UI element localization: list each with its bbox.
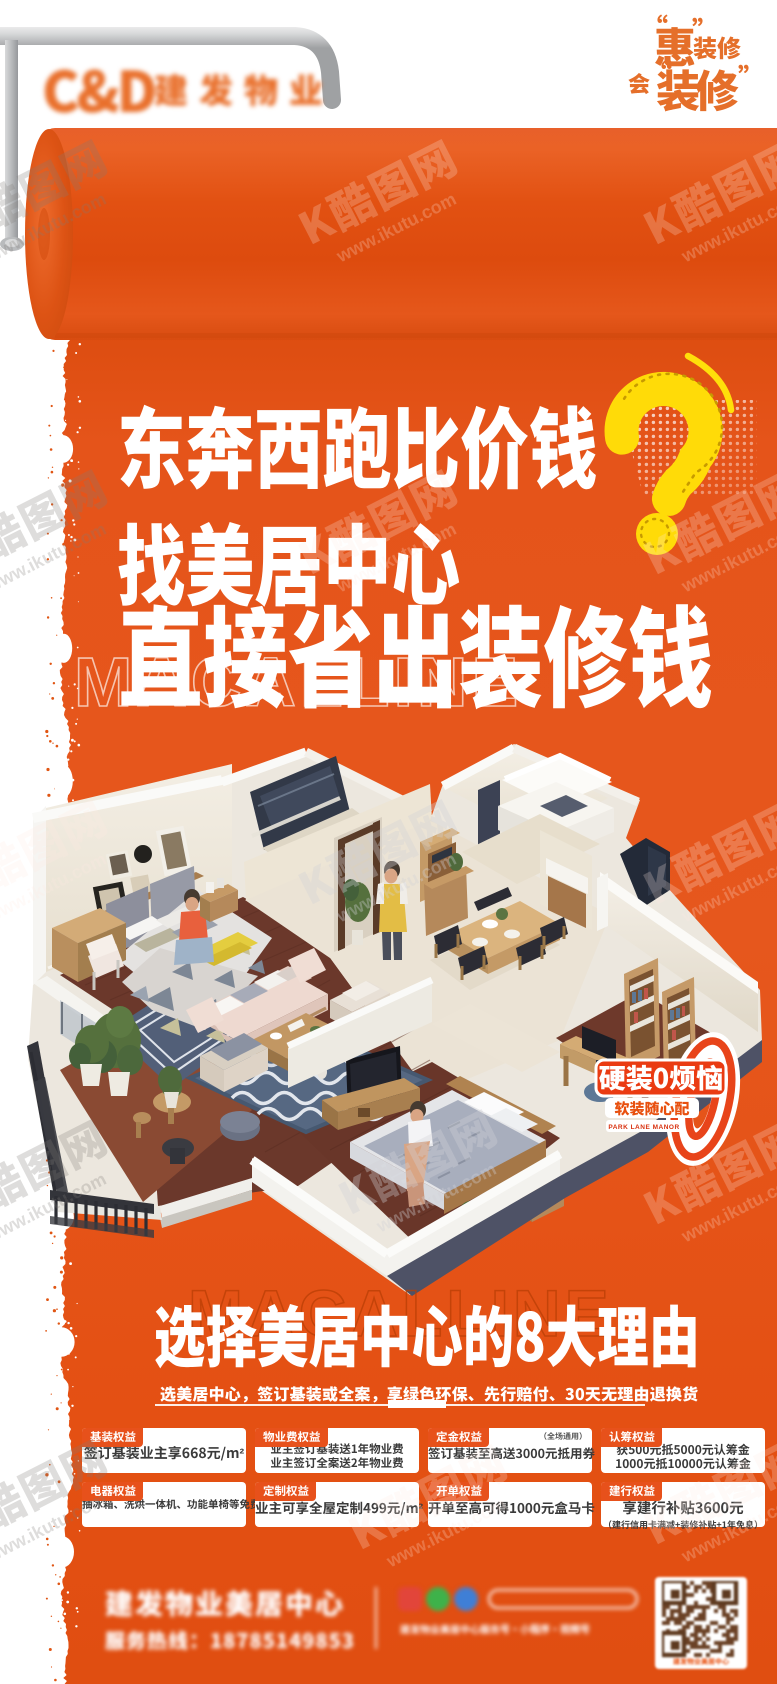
svg-text:硬装0烦恼: 硬装0烦恼: [599, 1057, 723, 1096]
svg-text:软装随心配: 软装随心配: [614, 1098, 689, 1119]
svg-text:PARK LANE MANOR: PARK LANE MANOR: [608, 1124, 679, 1131]
